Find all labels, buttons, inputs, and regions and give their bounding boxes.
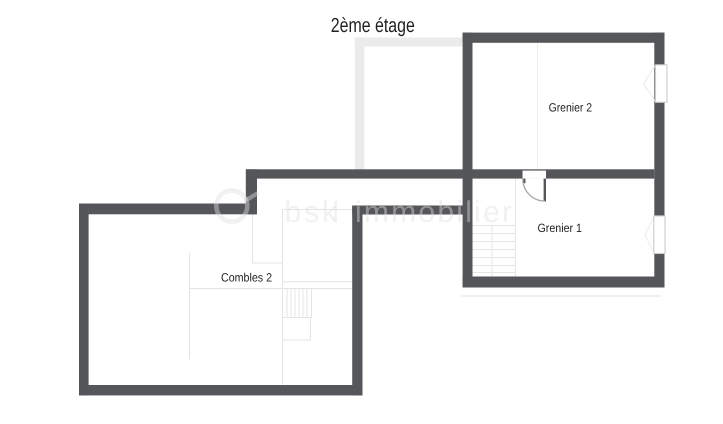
svg-text:Combles 2: Combles 2 <box>221 271 272 285</box>
svg-text:2ème étage: 2ème étage <box>331 15 415 37</box>
svg-text:immobilier: immobilier <box>355 196 512 229</box>
svg-text:Grenier 2: Grenier 2 <box>549 100 593 114</box>
svg-text:bsk: bsk <box>285 196 339 229</box>
svg-text:Grenier 1: Grenier 1 <box>538 221 583 235</box>
